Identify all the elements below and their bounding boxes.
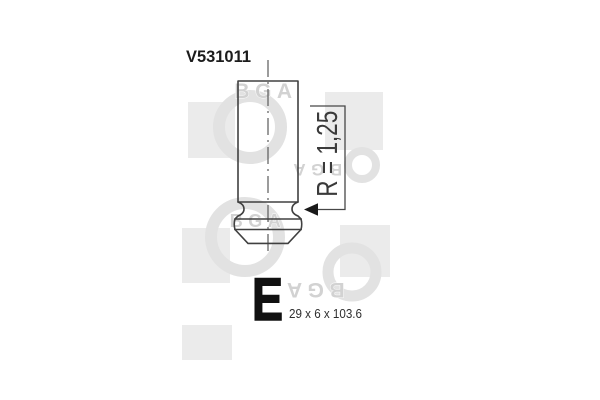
part-number-label: V531011 [186, 47, 251, 66]
valve-bead-right [301, 219, 302, 230]
valve-groove-right [292, 202, 301, 219]
valve-type-letter: E [252, 266, 283, 333]
catalog-part-image: BGA BGA BGA BGA R = 1,25 [0, 0, 600, 400]
watermark-brand-text-mirrored: BGA [281, 278, 344, 301]
radius-arrowhead-icon [304, 203, 318, 215]
watermark-square [182, 325, 232, 360]
valve-technical-drawing: BGA BGA BGA BGA R = 1,25 [0, 0, 600, 400]
valve-bead-left [234, 219, 235, 230]
valve-dimensions-label: 29 x 6 x 103.6 [289, 306, 362, 321]
watermark-brand-text: BGA [230, 211, 287, 231]
watermark-brand-text: BGA [234, 80, 297, 103]
radius-value-label: R = 1,25 [312, 111, 344, 197]
watermark-ring [348, 151, 376, 179]
